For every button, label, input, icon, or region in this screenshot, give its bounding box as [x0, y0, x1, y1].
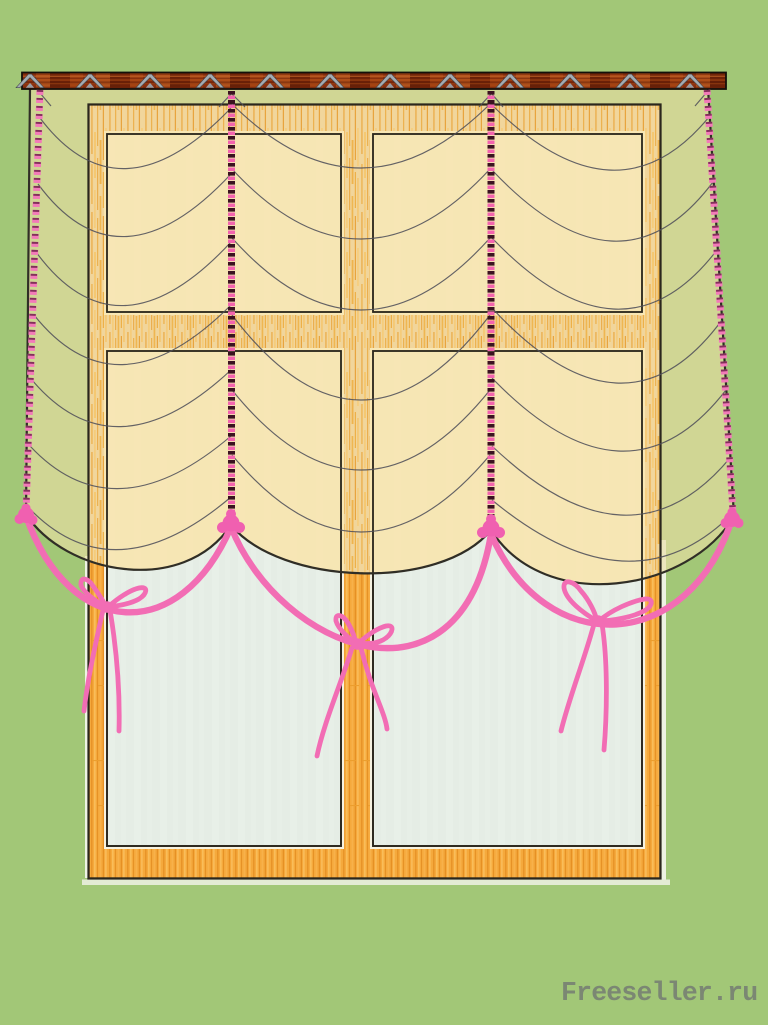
- svg-text:Freeseller.ru: Freeseller.ru: [561, 978, 757, 1008]
